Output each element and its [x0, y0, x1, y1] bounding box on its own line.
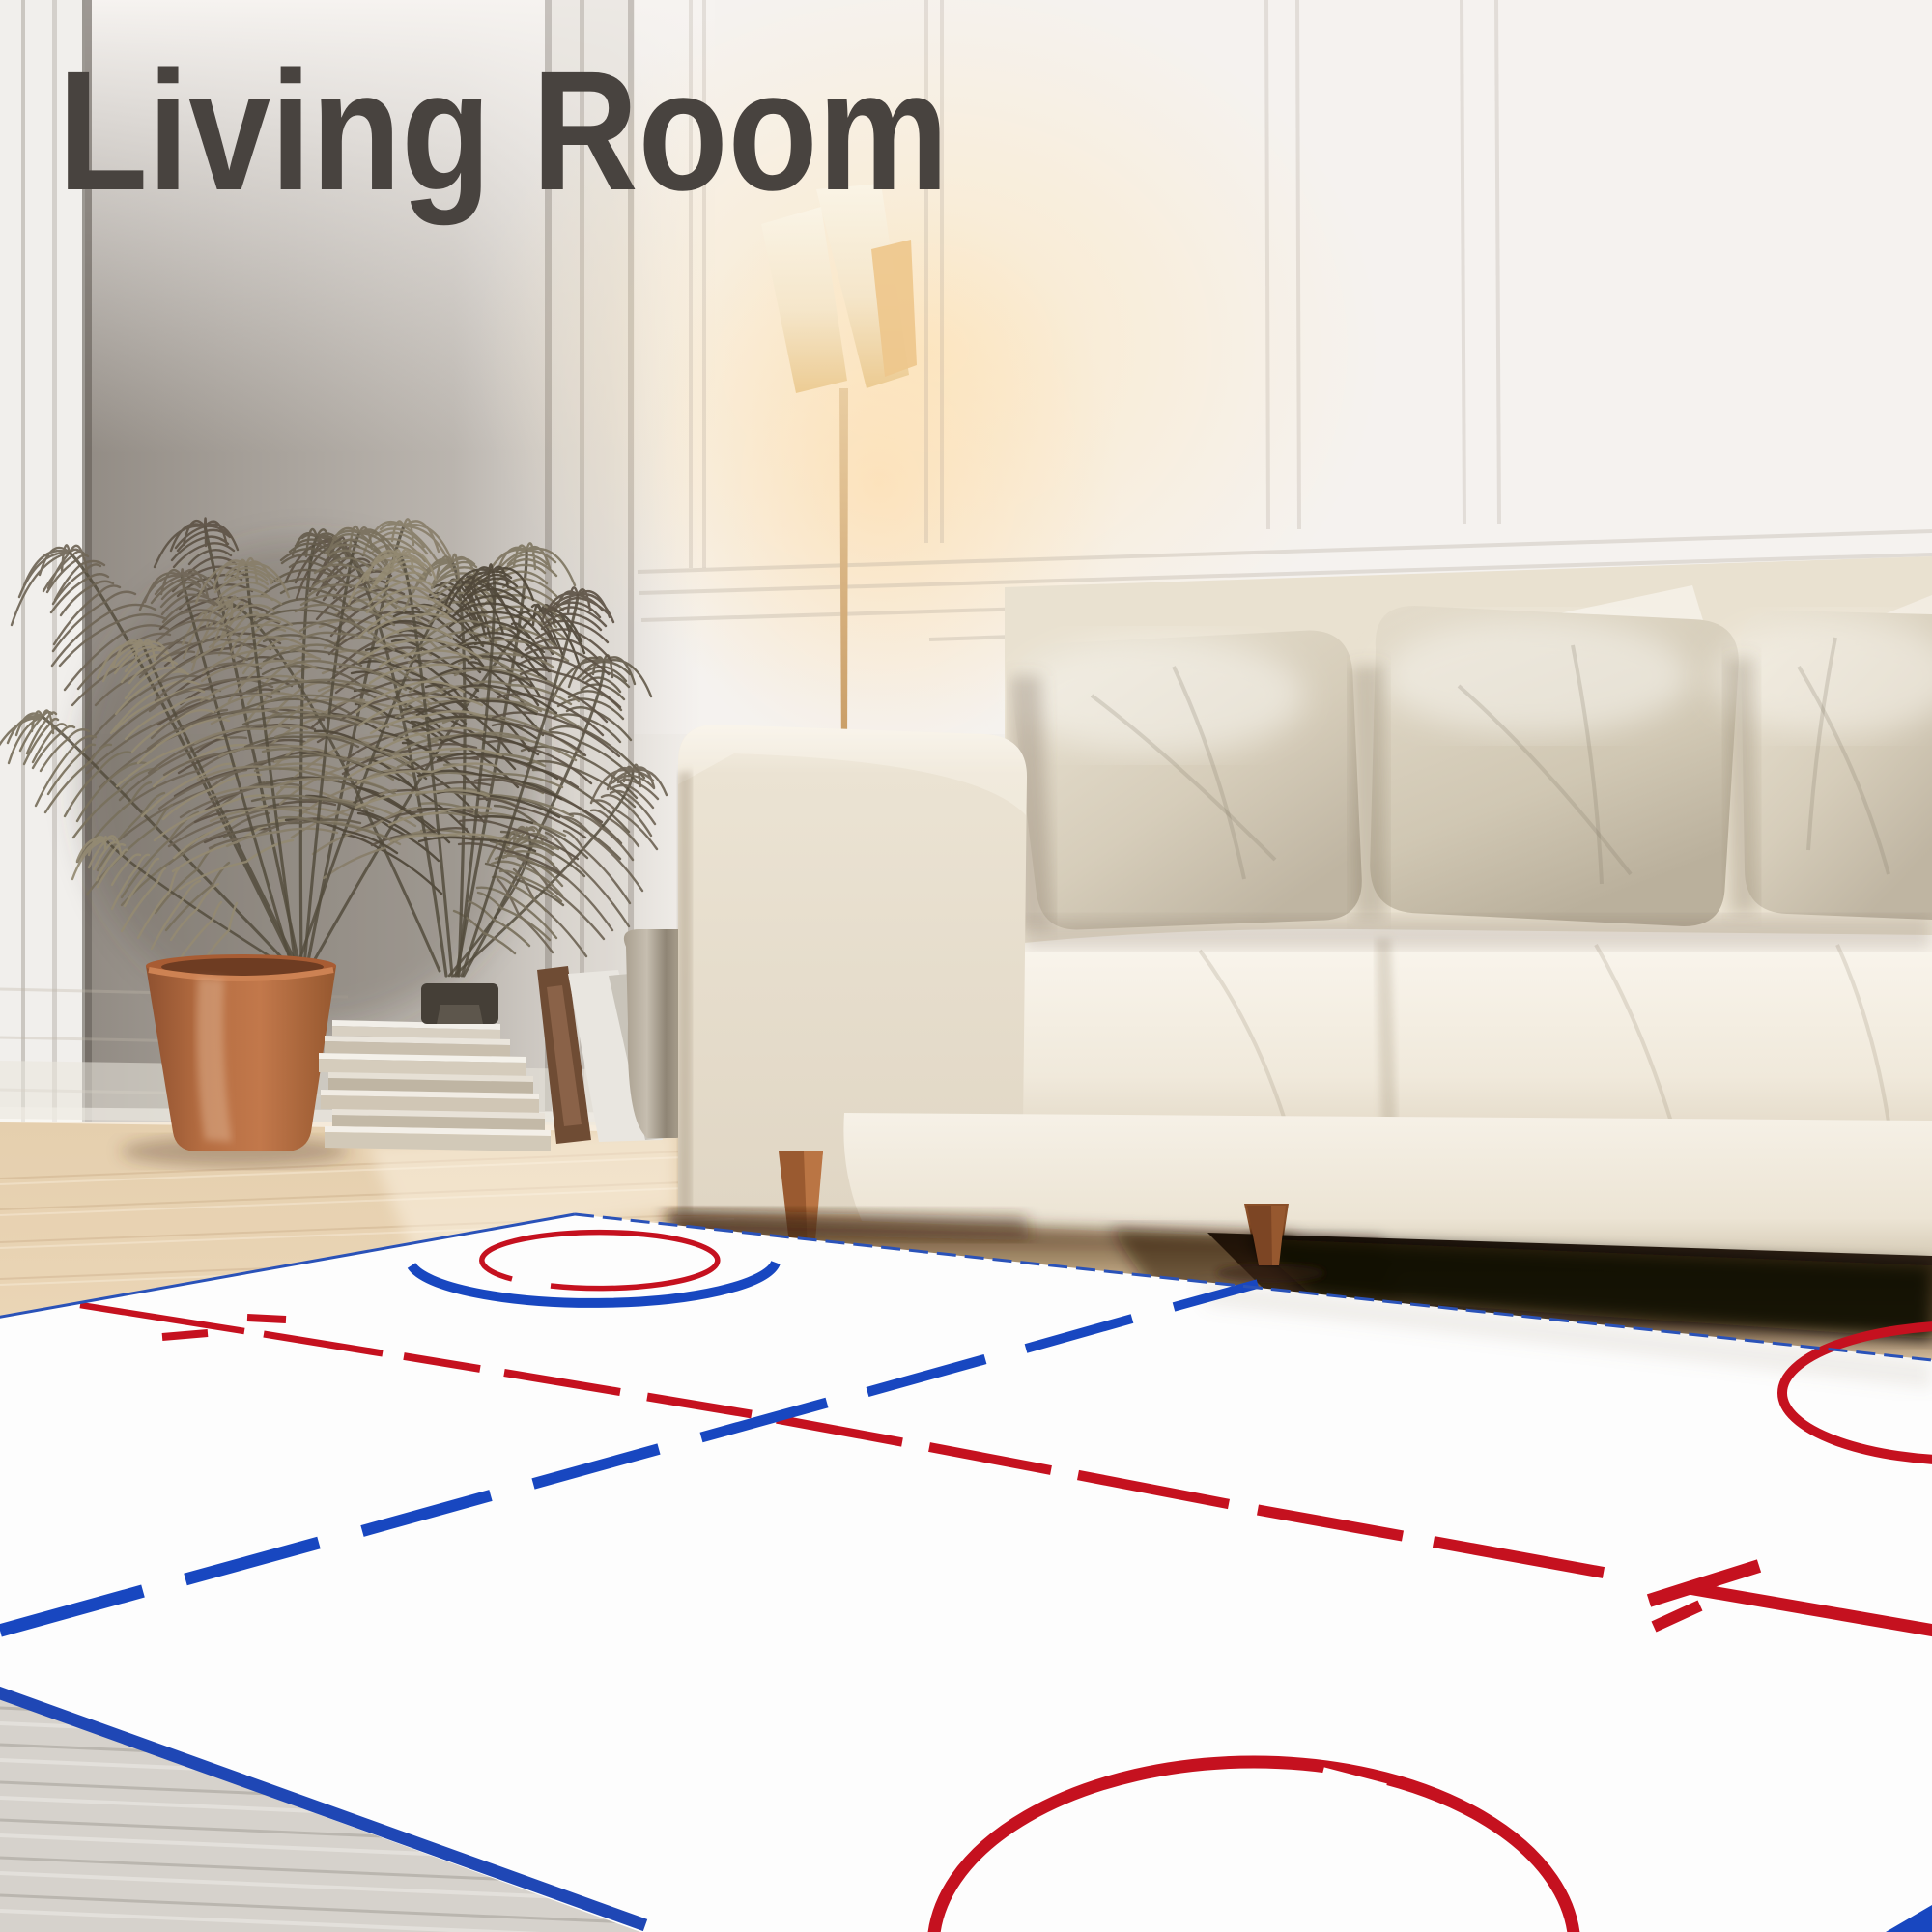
svg-text:Living Room: Living Room [58, 37, 949, 226]
